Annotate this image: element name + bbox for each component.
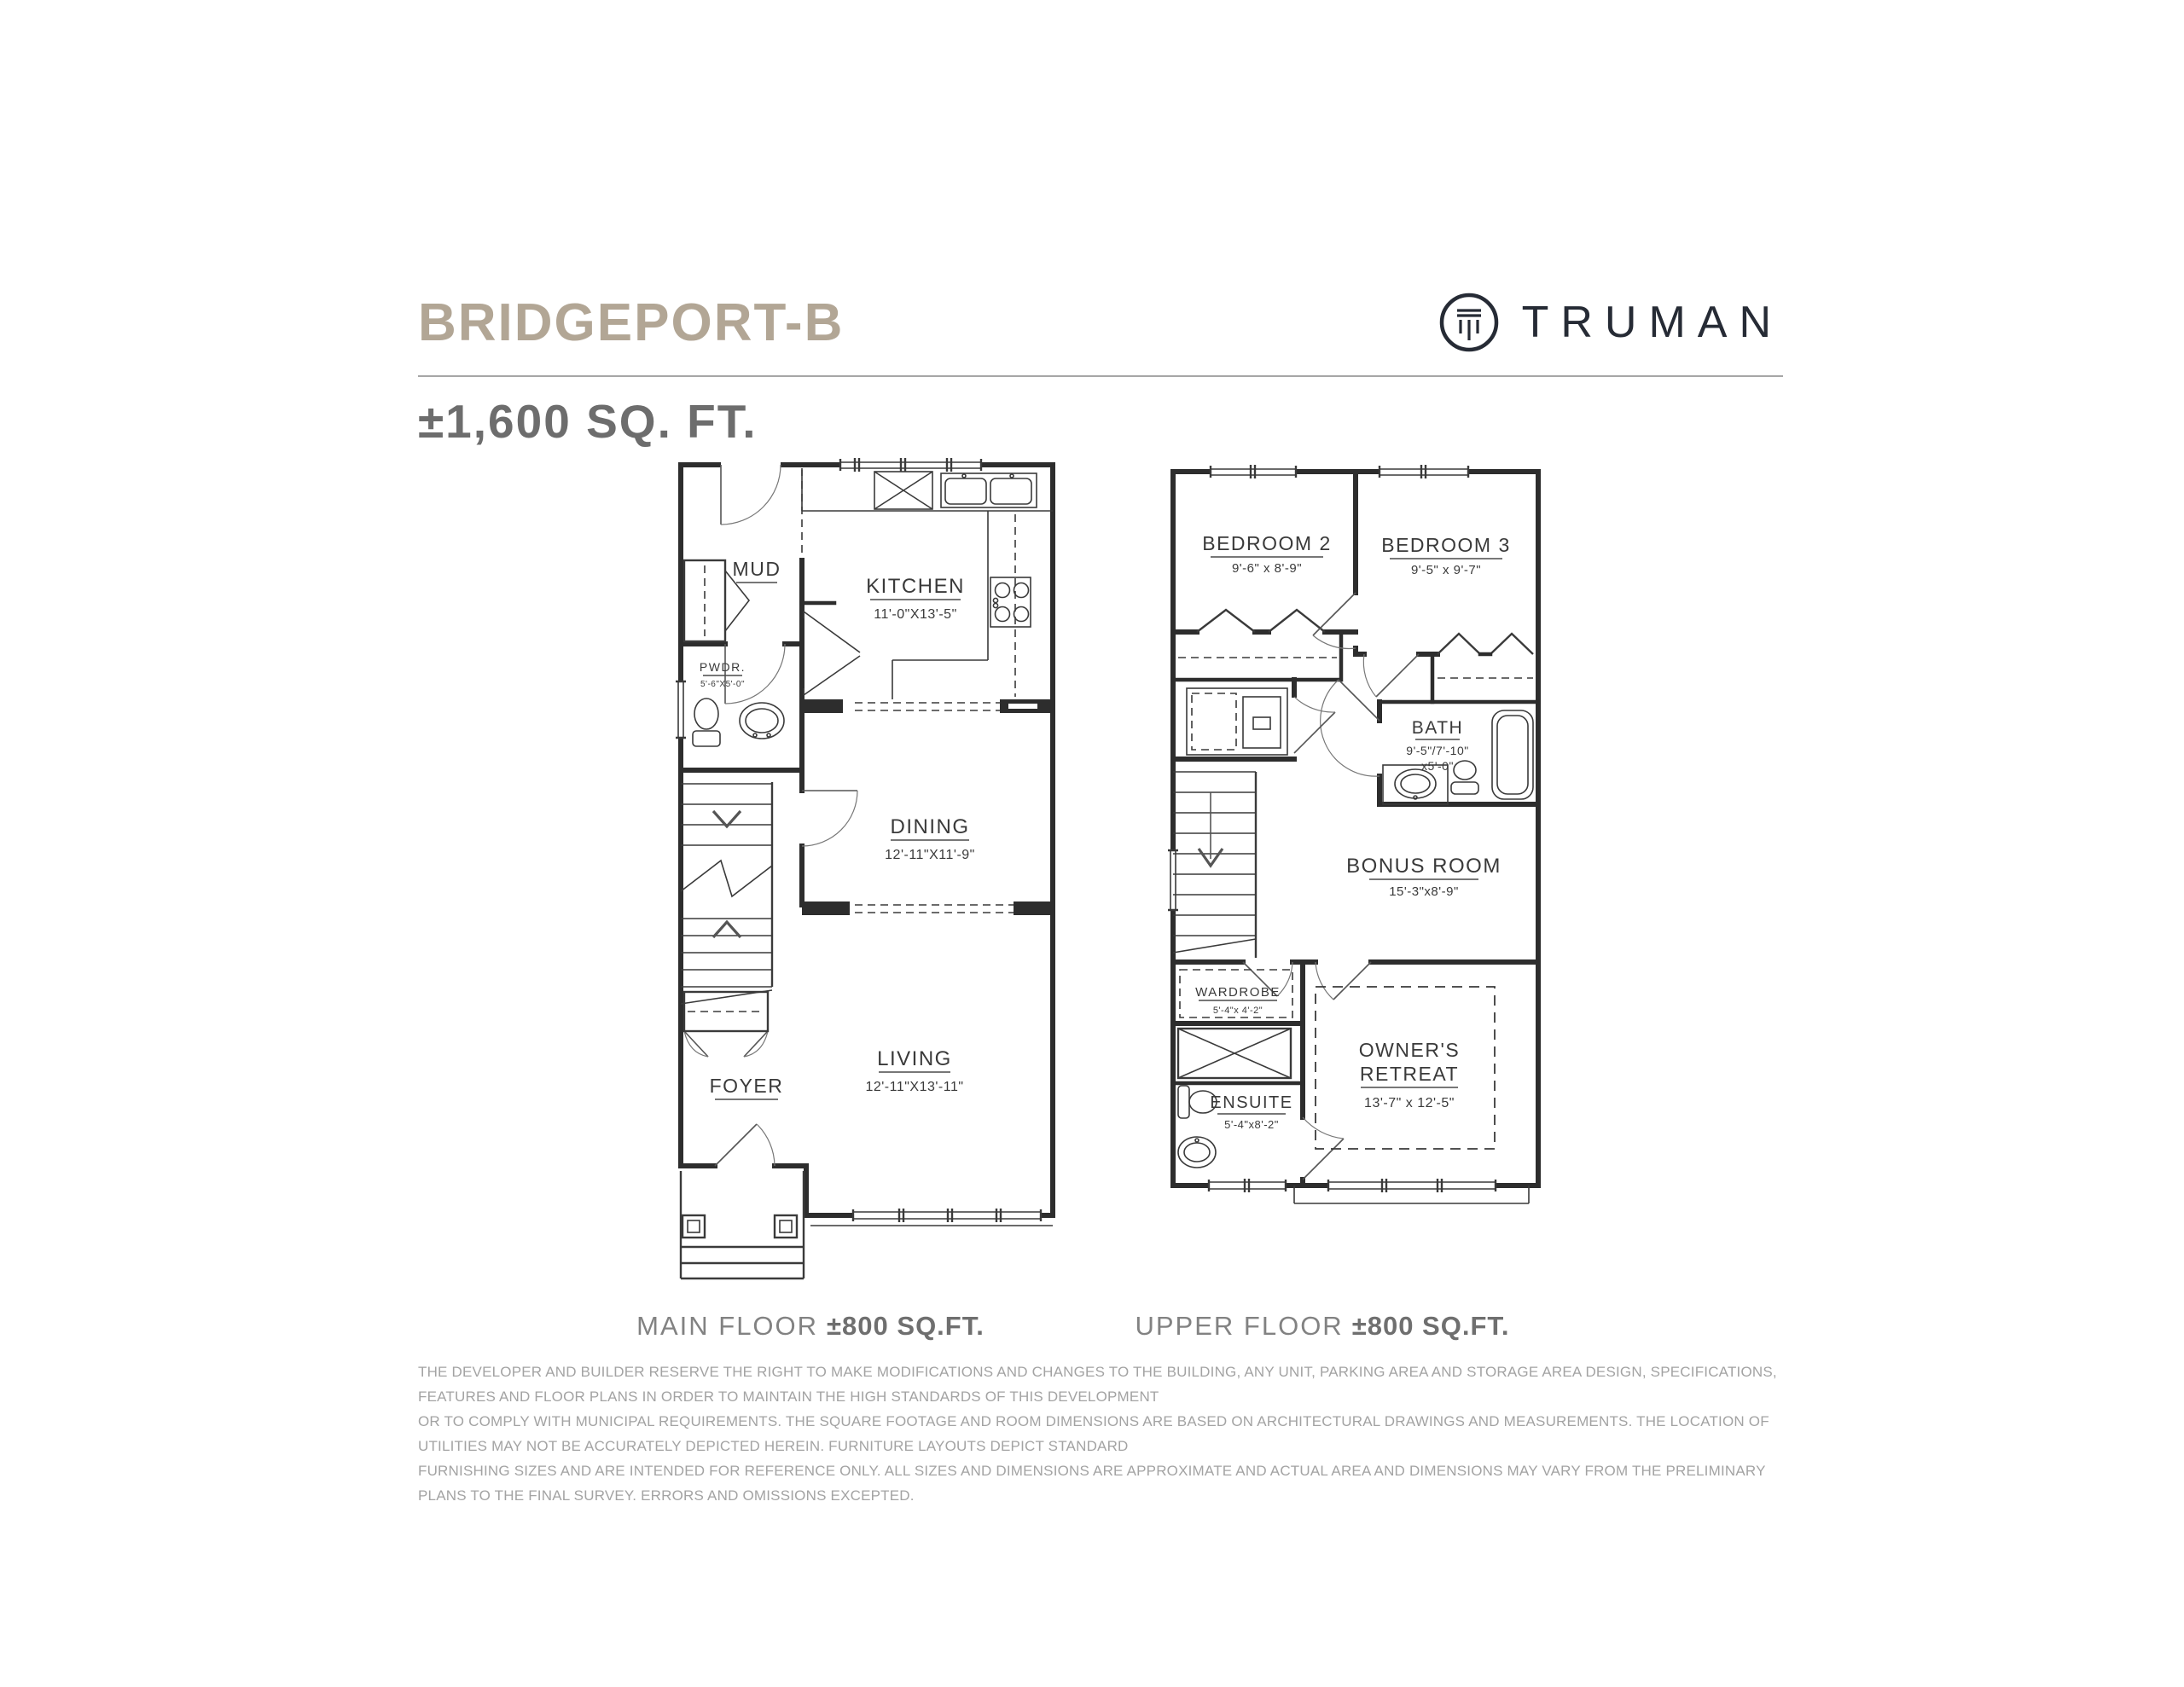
brand-name: TRUMAN — [1522, 297, 1783, 348]
pwdr-dims: 5'-6"X5'-0" — [700, 680, 745, 689]
bath-dims: 9'-5"/7'-10" — [1406, 744, 1468, 757]
wardrobe-dims: 5'-4"x 4'-2" — [1213, 1006, 1263, 1016]
bedroom3-label: BEDROOM 3 — [1381, 534, 1511, 556]
main-interior-walls — [681, 468, 1053, 915]
foyer-label: FOYER — [710, 1075, 784, 1097]
bath-label: BATH — [1412, 718, 1463, 738]
porch-post — [775, 1215, 797, 1238]
page-title: BRIDGEPORT-B — [418, 293, 844, 353]
living-label: LIVING — [877, 1047, 952, 1070]
toilet-icon — [1454, 761, 1476, 780]
floorplan-sheet: BRIDGEPORT-B TRUMAN ±1,600 SQ. FT. — [0, 0, 2184, 1687]
kitchen-dims: 11'-0"X13'-5" — [874, 607, 957, 622]
room-owners-retreat: OWNER'S RETREAT 13'-7" x 12'-5" — [1359, 1039, 1460, 1110]
bedroom3-dims: 9'-5" x 9'-7" — [1411, 563, 1481, 577]
ensuite-dims: 5'-4"x8'-2" — [1224, 1118, 1279, 1131]
washer-icon — [1253, 717, 1270, 729]
foyer-closet — [684, 992, 768, 1031]
room-wardrobe: WARDROBE 5'-4"x 4'-2" — [1195, 985, 1281, 1016]
dining-dims: 12'-11"X11'-9" — [885, 848, 975, 862]
dining-label: DINING — [891, 815, 970, 838]
porch-post — [682, 1215, 705, 1238]
ensuite-label: ENSUITE — [1210, 1093, 1292, 1112]
powder-fixtures — [693, 699, 784, 746]
laundry-closet — [1187, 688, 1287, 755]
owners-label-line2: RETREAT — [1360, 1063, 1459, 1085]
shower — [1178, 1029, 1291, 1078]
pwdr-label: PWDR. — [700, 660, 746, 674]
content: BRIDGEPORT-B TRUMAN ±1,600 SQ. FT. — [418, 283, 1783, 1477]
disclaimer-line2: OR TO COMPLY WITH MUNICIPAL REQUIREMENTS… — [418, 1413, 1769, 1454]
room-mud: MUD — [733, 558, 781, 583]
kitchen-label: KITCHEN — [866, 575, 965, 598]
main-floor-caption-area: ±800 SQ.FT. — [827, 1311, 985, 1341]
total-area-subtitle: ±1,600 SQ. FT. — [418, 394, 1783, 449]
upper-stairs — [1173, 772, 1256, 958]
bonus-dims: 15'-3"x8'-9" — [1389, 884, 1459, 899]
header: BRIDGEPORT-B TRUMAN — [418, 283, 1783, 362]
room-dining: DINING 12'-11"X11'-9" — [885, 815, 975, 862]
toilet-icon — [694, 699, 718, 729]
pantry — [804, 612, 860, 695]
upper-floor-plan: BEDROOM 2 9'-6" x 8'-9" BEDROOM 3 9'-5" … — [1166, 465, 1559, 1237]
room-bedroom2: BEDROOM 2 9'-6" x 8'-9" — [1202, 532, 1332, 576]
room-foyer: FOYER — [710, 1075, 784, 1099]
disclaimer: THE DEVELOPER AND BUILDER RESERVE THE RI… — [418, 1359, 1792, 1508]
disclaimer-line3: FURNISHING SIZES AND ARE INTENDED FOR RE… — [418, 1463, 1765, 1504]
room-ensuite: ENSUITE 5'-4"x8'-2" — [1210, 1093, 1292, 1131]
front-porch — [681, 1171, 1053, 1278]
truman-column-icon — [1437, 290, 1501, 355]
main-stairs — [681, 782, 772, 1004]
room-kitchen: KITCHEN 11'-0"X13'-5" — [866, 575, 965, 622]
wardrobe-label: WARDROBE — [1195, 985, 1281, 1000]
room-bonus: BONUS ROOM 15'-3"x8'-9" — [1346, 855, 1501, 899]
bath-dims2: x5'-0" — [1421, 759, 1454, 773]
living-dims: 12'-11"X13'-11" — [865, 1080, 963, 1094]
upper-floor-caption-area: ±800 SQ.FT. — [1352, 1311, 1510, 1341]
bedroom3-closet — [1438, 634, 1533, 678]
upper-floor-caption: UPPER FLOOR±800 SQ.FT. — [1118, 1311, 1527, 1342]
main-windows — [676, 458, 1041, 1222]
room-bedroom3: BEDROOM 3 9'-5" x 9'-7" — [1381, 534, 1511, 577]
bedroom2-dims: 9'-6" x 8'-9" — [1232, 561, 1302, 576]
tub-icon — [1492, 710, 1533, 799]
owners-dims: 13'-7" x 12'-5" — [1364, 1096, 1455, 1110]
stove-icon — [990, 577, 1031, 627]
main-floor-caption: MAIN FLOOR±800 SQ.FT. — [606, 1311, 1015, 1342]
mud-label: MUD — [733, 558, 781, 580]
upper-floor-caption-name: UPPER FLOOR — [1135, 1311, 1343, 1341]
bonus-label: BONUS ROOM — [1346, 855, 1501, 878]
header-divider — [418, 375, 1783, 377]
owners-label-line1: OWNER'S — [1359, 1039, 1460, 1061]
main-floor-plan: MUD KITCHEN 11'-0"X13'-5" PWDR. 5'-6"X5'… — [674, 458, 1066, 1341]
room-living: LIVING 12'-11"X13'-11" — [865, 1047, 963, 1094]
brand-logo: TRUMAN — [1437, 290, 1783, 355]
bedroom2-label: BEDROOM 2 — [1202, 532, 1332, 554]
room-pwdr: PWDR. 5'-6"X5'-0" — [700, 660, 746, 689]
main-floor-caption-name: MAIN FLOOR — [636, 1311, 818, 1341]
disclaimer-line1: THE DEVELOPER AND BUILDER RESERVE THE RI… — [418, 1364, 1777, 1405]
